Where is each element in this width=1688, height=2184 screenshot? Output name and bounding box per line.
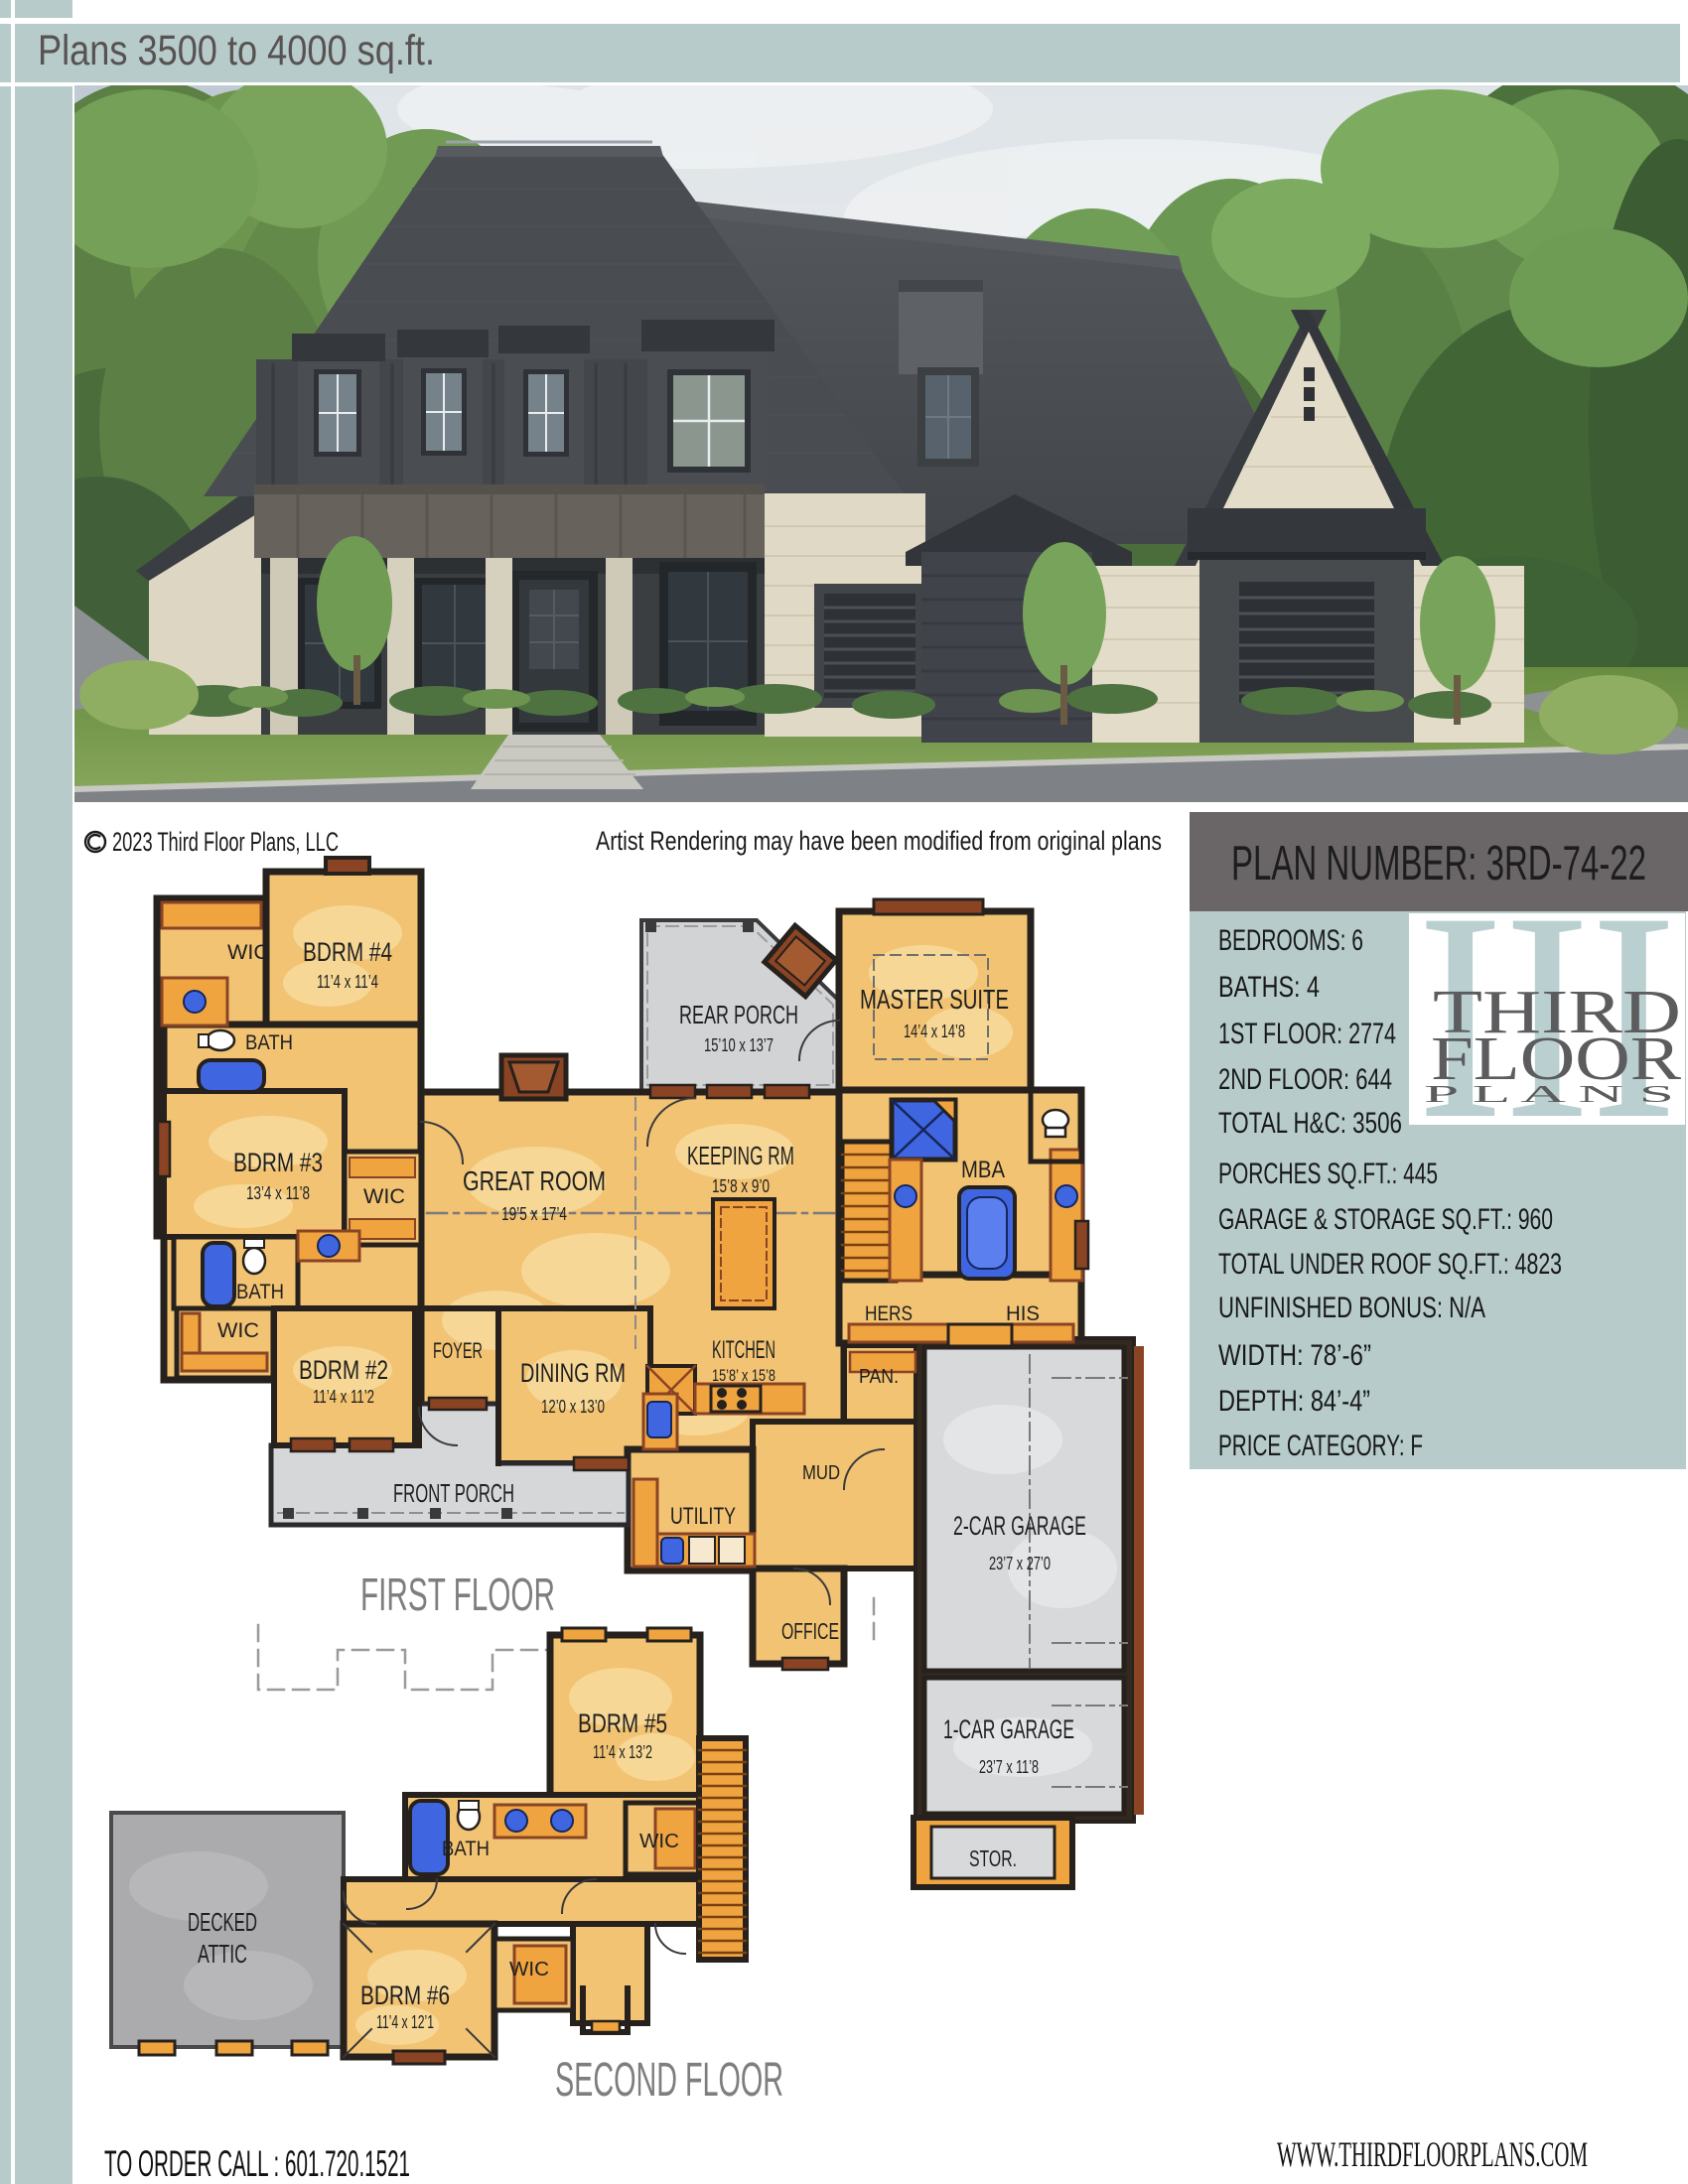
svg-text:WIC: WIC	[363, 1185, 405, 1208]
svg-text:TOTAL UNDER ROOF SQ.FT.: 482: TOTAL UNDER ROOF SQ.FT.: 4823	[1218, 1248, 1562, 1281]
svg-text:FIRST FLOOR: FIRST FLOOR	[360, 1569, 555, 1620]
svg-text:DECKED: DECKED	[188, 1907, 257, 1937]
svg-text:PRICE CATEGORY: F: PRICE CATEGORY: F	[1218, 1430, 1423, 1462]
svg-text:2-CAR GARAGE: 2-CAR GARAGE	[953, 1511, 1086, 1541]
svg-text:STOR.: STOR.	[969, 1845, 1017, 1871]
svg-text:2ND FLOOR: 644: 2ND FLOOR: 644	[1218, 1063, 1392, 1096]
svg-text:REAR PORCH: REAR PORCH	[679, 1000, 798, 1029]
svg-text:GREAT ROOM: GREAT ROOM	[463, 1165, 606, 1196]
svg-text:15’10 x 13’7: 15’10 x 13’7	[704, 1035, 774, 1055]
svg-text:BATH: BATH	[442, 1838, 490, 1860]
svg-text:1ST FLOOR: 2774: 1ST FLOOR: 2774	[1218, 1018, 1396, 1050]
svg-text:UNFINISHED BONUS: N/A: UNFINISHED BONUS: N/A	[1218, 1292, 1485, 1324]
svg-text:GARAGE & STORAGE SQ.FT.: 960: GARAGE & STORAGE SQ.FT.: 960	[1218, 1203, 1553, 1236]
svg-text:14’4 x 14’8: 14’4 x 14’8	[904, 1022, 965, 1041]
svg-text:P L A N S: P L A N S	[1424, 1082, 1674, 1108]
svg-text:11’4 x 11’2: 11’4 x 11’2	[313, 1387, 374, 1407]
svg-text:WIC: WIC	[217, 1319, 259, 1342]
svg-text:DINING RM: DINING RM	[520, 1358, 626, 1388]
svg-text:UTILITY: UTILITY	[670, 1503, 736, 1530]
svg-text:23’7 x 27’0: 23’7 x 27’0	[989, 1554, 1051, 1573]
svg-text:WWW.THIRDFLOORPLANS.COM: WWW.THIRDFLOORPLANS.COM	[1277, 2134, 1588, 2174]
svg-text:11’4 x 12’1: 11’4 x 12’1	[376, 2012, 434, 2032]
svg-text:12’0 x 13’0: 12’0 x 13’0	[541, 1397, 605, 1417]
svg-text:MBA: MBA	[961, 1157, 1005, 1183]
svg-text:ATTIC: ATTIC	[198, 1939, 247, 1969]
svg-text:SECOND FLOOR: SECOND FLOOR	[555, 2054, 783, 2107]
svg-text:23’7 x 11’8: 23’7 x 11’8	[979, 1757, 1039, 1777]
svg-text:Artist Rendering may have been: Artist Rendering may have been modified …	[596, 826, 1162, 856]
svg-text:BATHS: 4: BATHS: 4	[1218, 971, 1320, 1004]
svg-text:FOYER: FOYER	[433, 1338, 483, 1363]
svg-text:OFFICE: OFFICE	[781, 1618, 839, 1644]
svg-text:15’8’ x 15’8: 15’8’ x 15’8	[712, 1366, 775, 1385]
svg-text:HIS: HIS	[1006, 1302, 1040, 1325]
svg-text:2023 Third Floor Plans, LLC: 2023 Third Floor Plans, LLC	[112, 827, 339, 857]
svg-text:15’8 x 9’0: 15’8 x 9’0	[712, 1176, 770, 1196]
svg-text:MUD: MUD	[802, 1462, 840, 1484]
svg-text:PAN.: PAN.	[859, 1366, 899, 1388]
svg-text:BDRM #4: BDRM #4	[303, 937, 392, 967]
svg-text:DEPTH: 84’-4”: DEPTH: 84’-4”	[1218, 1385, 1370, 1418]
svg-text:WIC: WIC	[639, 1831, 679, 1852]
svg-text:BDRM #2: BDRM #2	[299, 1355, 388, 1385]
svg-text:HERS: HERS	[865, 1302, 913, 1325]
svg-text:MASTER SUITE: MASTER SUITE	[860, 984, 1009, 1015]
svg-text:BDRM #3: BDRM #3	[233, 1148, 323, 1177]
svg-text:TOTAL H&C: 3506: TOTAL H&C: 3506	[1218, 1107, 1402, 1140]
svg-text:BATH: BATH	[236, 1281, 284, 1303]
svg-text:KEEPING RM: KEEPING RM	[687, 1141, 794, 1170]
svg-text:11’4 x 13’2: 11’4 x 13’2	[593, 1742, 652, 1762]
svg-text:BDRM #5: BDRM #5	[578, 1708, 667, 1738]
svg-text:WIC: WIC	[227, 941, 269, 964]
svg-text:PORCHES SQ.FT.: 445: PORCHES SQ.FT.: 445	[1218, 1158, 1438, 1190]
svg-text:11’4 x 11’4: 11’4 x 11’4	[317, 972, 378, 992]
svg-text:WIC: WIC	[509, 1959, 549, 1980]
svg-text:Plans 3500 to 4000 sq.ft.: Plans 3500 to 4000 sq.ft.	[38, 27, 435, 74]
svg-text:19’5 x 17’4: 19’5 x 17’4	[501, 1204, 567, 1224]
svg-text:13’4 x 11’8: 13’4 x 11’8	[246, 1183, 310, 1203]
svg-text:WIDTH: 78’-6”: WIDTH: 78’-6”	[1218, 1339, 1371, 1372]
svg-text:1-CAR GARAGE: 1-CAR GARAGE	[943, 1714, 1074, 1744]
svg-text:KITCHEN: KITCHEN	[712, 1336, 775, 1364]
svg-text:BATH: BATH	[245, 1031, 293, 1054]
svg-text:TO ORDER CALL : 601.720.1521: TO ORDER CALL : 601.720.1521	[104, 2143, 410, 2184]
svg-text:BEDROOMS: 6: BEDROOMS: 6	[1218, 924, 1363, 957]
svg-text:BDRM #6: BDRM #6	[360, 1980, 450, 2010]
svg-text:FRONT PORCH: FRONT PORCH	[393, 1478, 514, 1508]
